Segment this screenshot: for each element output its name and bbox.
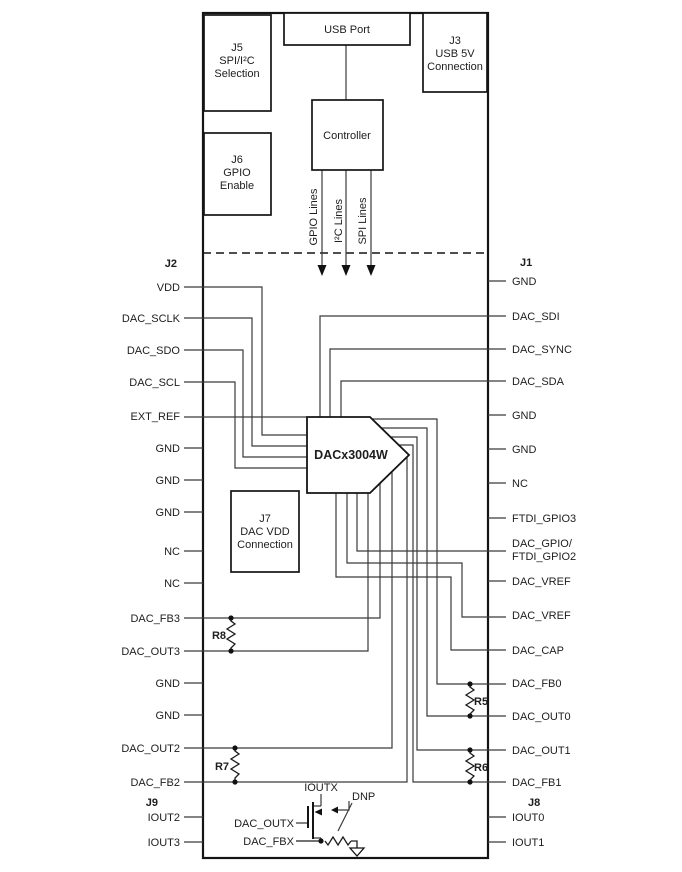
junction-dot [228, 648, 233, 653]
j2-header-label: J2 [165, 258, 177, 270]
pin-label-gnd: GND [512, 276, 537, 288]
j6-line2: GPIO [223, 167, 251, 179]
pin-label-gnd: GND [156, 710, 181, 722]
spi-lines-label: SPI Lines [357, 197, 369, 245]
pin-label-gnd: GND [156, 443, 181, 455]
r8-label: R8 [212, 630, 226, 642]
pin-label-dac-fb1: DAC_FB1 [512, 777, 562, 789]
j5-line2: SPI/I²C [219, 55, 255, 67]
r5-label: R5 [474, 696, 488, 708]
dnp-label: DNP [352, 791, 375, 803]
pin-label-dac-sclk: DAC_SCLK [122, 313, 181, 325]
pin-label-dac-out1: DAC_OUT1 [512, 745, 571, 757]
j5-line3: Selection [214, 68, 259, 80]
j1-header-label: J1 [520, 257, 532, 269]
junction-dot [467, 747, 472, 752]
dac-chip-label: DACx3004W [314, 448, 388, 462]
pin-label-dac-sda: DAC_SDA [512, 376, 565, 388]
r6-label: R6 [474, 762, 488, 774]
dac-outx-net-label: DAC_OUTX [234, 818, 295, 830]
page: { "boxes": { "usb_port": {"title": "USB … [0, 0, 682, 872]
j7-line2: DAC VDD [240, 526, 290, 538]
pin-label-dac-fb0: DAC_FB0 [512, 678, 562, 690]
pin-label-ext-ref: EXT_REF [130, 411, 180, 423]
j6-name: J6 [231, 154, 243, 166]
pin-label-dac-scl: DAC_SCL [129, 377, 180, 389]
junction-dot [232, 745, 237, 750]
pin-label-dac-out0: DAC_OUT0 [512, 711, 571, 723]
pin-label-iout0: IOUT0 [512, 812, 544, 824]
j7-box-group: J7 DAC VDD Connection [231, 491, 299, 572]
pin-label-dac-sync: DAC_SYNC [512, 344, 572, 356]
j1-pin-stubs [488, 281, 506, 842]
controller-label: Controller [323, 130, 371, 142]
pin-label-dac-gpio: DAC_GPIO/ [512, 538, 573, 550]
j1-header-pins: J1 GND DAC_SDI DAC_SYNC DAC_SDA GND GND … [512, 257, 576, 849]
pin-label-iout1: IOUT1 [512, 837, 544, 849]
pin-label-ftdi-gpio3: FTDI_GPIO3 [512, 513, 576, 525]
pin-label-dac-fb3: DAC_FB3 [130, 613, 180, 625]
j2-header-pins: J2 VDD DAC_SCLK DAC_SDO DAC_SCL EXT_REF … [121, 258, 180, 849]
junction-dot [318, 838, 323, 843]
pin-label-nc: NC [164, 578, 180, 590]
j8-header-label: J8 [528, 797, 540, 809]
pin-label-nc: NC [512, 478, 528, 490]
dac-fbx-net-label: DAC_FBX [243, 836, 294, 848]
r7-label: R7 [215, 761, 229, 773]
pin-label-dac-sdo: DAC_SDO [127, 345, 181, 357]
junction-dot [467, 779, 472, 784]
junction-dot [232, 779, 237, 784]
pin-label-dac-cap: DAC_CAP [512, 645, 564, 657]
usb-port-label: USB Port [324, 24, 370, 36]
j3-line3: Connection [427, 61, 483, 73]
pin-label-gnd: GND [512, 410, 537, 422]
pin-label-vdd: VDD [157, 282, 180, 294]
j6-line3: Enable [220, 180, 254, 192]
pin-label-dac-fb2: DAC_FB2 [130, 777, 180, 789]
pin-label-dac-out3: DAC_OUT3 [121, 646, 180, 658]
pin-label-gnd: GND [512, 444, 537, 456]
j2-pin-stubs [184, 448, 203, 842]
pin-label-gnd: GND [156, 678, 181, 690]
pin-label-ftdi-gpio2: FTDI_GPIO2 [512, 551, 576, 563]
gpio-lines-label: GPIO Lines [308, 188, 320, 245]
j7-line3: Connection [237, 539, 293, 551]
j5-name: J5 [231, 42, 243, 54]
pin-label-dac-vref: DAC_VREF [512, 610, 571, 622]
pin-label-dac-sdi: DAC_SDI [512, 311, 560, 323]
j7-name: J7 [259, 513, 271, 525]
j3-name: J3 [449, 35, 461, 47]
pin-label-dac-out2: DAC_OUT2 [121, 743, 180, 755]
junction-dot [228, 615, 233, 620]
junction-dot [467, 681, 472, 686]
j3-line2: USB 5V [435, 48, 475, 60]
pin-label-iout3: IOUT3 [148, 837, 180, 849]
junction-dot [467, 713, 472, 718]
i2c-lines-label: I²C Lines [333, 198, 345, 243]
pin-label-dac-vref: DAC_VREF [512, 576, 571, 588]
j9-header-label: J9 [146, 797, 158, 809]
ioutx-net-label: IOUTX [304, 782, 338, 794]
pin-label-nc: NC [164, 546, 180, 558]
pin-label-gnd: GND [156, 475, 181, 487]
evm-block-diagram: GPIO Lines I²C Lines SPI Lines USB Port … [0, 0, 682, 872]
pin-label-gnd: GND [156, 507, 181, 519]
pin-label-iout2: IOUT2 [148, 812, 180, 824]
